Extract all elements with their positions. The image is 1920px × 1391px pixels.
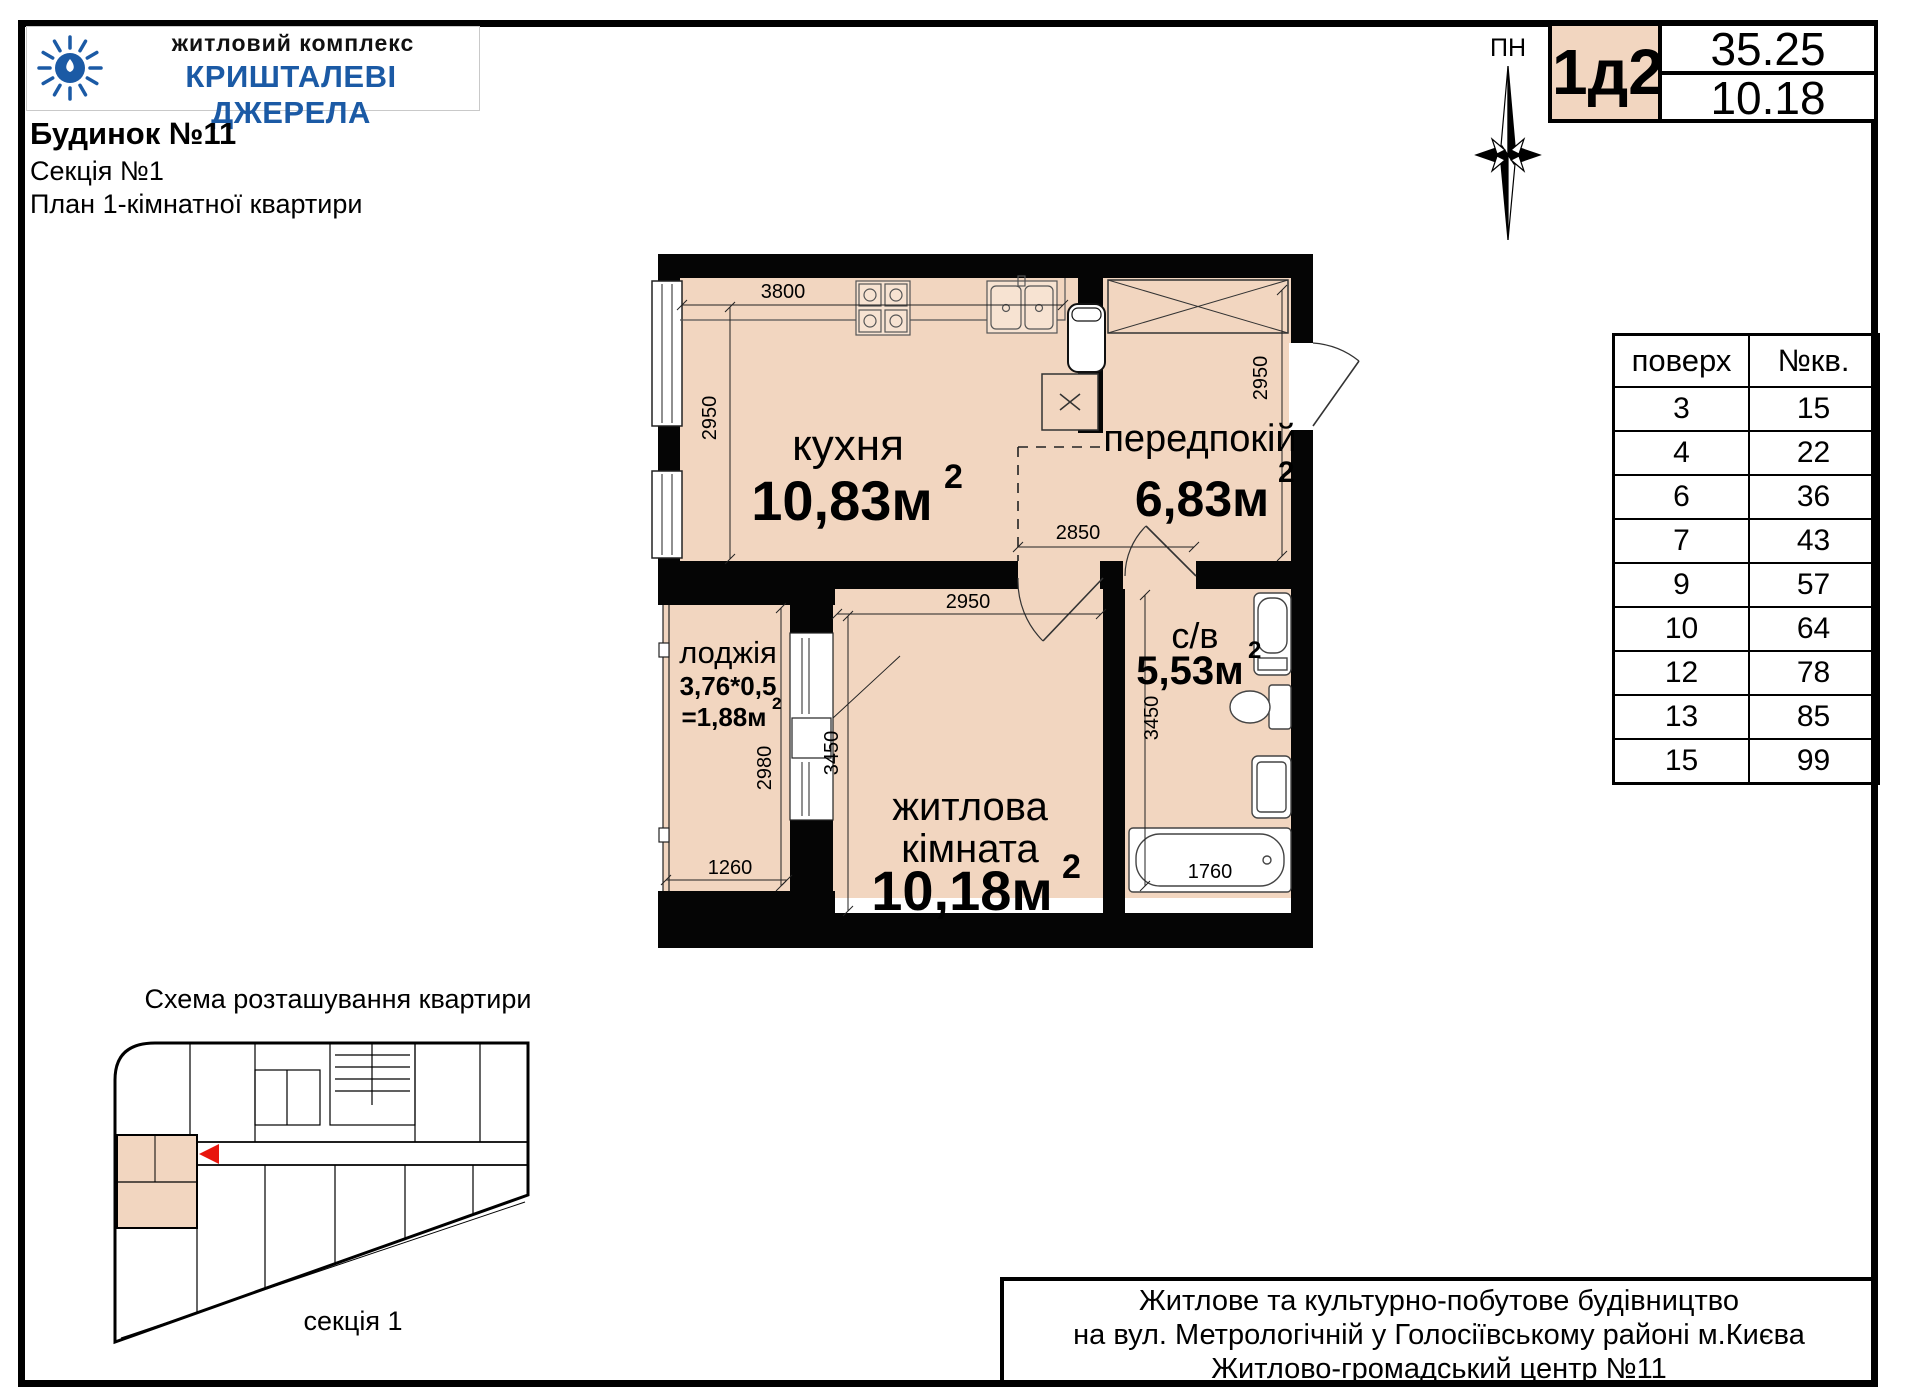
floor-cell: 15 [1614,739,1750,784]
floor-cell: 7 [1614,519,1750,563]
room-label-hall: передпокій [1103,418,1296,460]
apt-cell: 36 [1749,475,1879,519]
room-area-hall: 6,83м [1135,471,1269,527]
compass-label: ПН [1490,34,1526,62]
room-area-kitchen-sup: 2 [944,458,963,496]
dim-hall-width: 2850 [1056,522,1101,544]
room-area-bath: 5,53м [1136,649,1243,693]
floor-cell: 3 [1614,387,1750,431]
room-label-loggia: лоджія [679,635,777,670]
table-row: 315 [1614,387,1879,431]
dim-bath-height: 3450 [1141,696,1163,741]
project-info-line2: на вул. Метрологічній у Голосіївському р… [1004,1318,1874,1352]
dim-living-width: 2950 [946,591,991,613]
loggia-formula: 3,76*0,5 [680,671,777,701]
table-row: 422 [1614,431,1879,475]
plan-type-title: План 1-кімнатної квартири [30,189,362,220]
dim-kitchen-height: 2950 [699,396,721,441]
sun-logo-icon [35,33,105,103]
section-title: Секція №1 [30,156,164,187]
apt-cell: 99 [1749,739,1879,784]
apt-cell: 64 [1749,607,1879,651]
table-row: 1064 [1614,607,1879,651]
room-area-loggia: =1,88м [681,702,766,732]
room-label-kitchen: кухня [792,421,904,470]
apt-cell: 22 [1749,431,1879,475]
apt-cell: 78 [1749,651,1879,695]
room-area-living-sup: 2 [1062,848,1081,886]
apartment-type-badge: 1д2 [1548,22,1662,123]
project-info-line1: Житлове та культурно-побутове будівництв… [1004,1284,1874,1318]
apt-cell: 85 [1749,695,1879,739]
floor-cell: 4 [1614,431,1750,475]
highlighted-apartment [117,1135,197,1228]
table-row: 743 [1614,519,1879,563]
floor-cell: 9 [1614,563,1750,607]
floor-cell: 13 [1614,695,1750,739]
floor-cell: 10 [1614,607,1750,651]
room-area-bath-sup: 2 [1248,637,1261,664]
compass-north-icon: ПН [1470,26,1550,246]
scheme-title: Схема розташування квартири [138,984,538,1015]
apartment-floor-plan: кухня 10,83м 2 передпокій 6,83м 2 лоджія… [650,248,1365,958]
floor-cell: 12 [1614,651,1750,695]
table-row: 1385 [1614,695,1879,739]
floors-table: поверх №кв. 315 422 636 743 957 1064 127… [1612,333,1880,785]
logo: житловий комплекс КРИШТАЛЕВІ ДЖЕРЕЛА [26,26,480,111]
room-area-living: 10,18м [871,859,1053,922]
table-row: 1278 [1614,651,1879,695]
living-area-value: 10.18 [1658,71,1878,123]
building-title: Будинок №11 [30,116,236,152]
total-area-value: 35.25 [1658,22,1878,75]
dim-bath-width: 1760 [1188,861,1233,883]
room-label-living-1: житлова [892,785,1048,829]
dim-hall-height: 2950 [1250,356,1272,401]
room-area-loggia-sup: 2 [772,694,781,713]
apt-cell: 43 [1749,519,1879,563]
table-row: 1599 [1614,739,1879,784]
logo-subtitle: житловий комплекс [111,30,475,57]
dim-loggia-width: 1260 [708,857,753,879]
project-info-line3: Житлово-громадський центр №11 [1004,1352,1874,1386]
table-header-row: поверх №кв. [1614,335,1879,388]
table-row: 636 [1614,475,1879,519]
apt-cell: 15 [1749,387,1879,431]
col-header-floor: поверх [1614,335,1750,388]
apt-cell: 57 [1749,563,1879,607]
floor-cell: 6 [1614,475,1750,519]
dim-kitchen-width: 3800 [761,281,806,303]
dim-loggia-height: 2980 [754,746,776,791]
dim-living-height: 3450 [821,731,843,776]
table-row: 957 [1614,563,1879,607]
room-area-hall-sup: 2 [1278,456,1295,489]
col-header-apt: №кв. [1749,335,1879,388]
scheme-caption: секція 1 [253,1306,453,1337]
room-area-kitchen: 10,83м [751,469,933,532]
project-info-box: Житлове та культурно-побутове будівництв… [1000,1277,1878,1385]
